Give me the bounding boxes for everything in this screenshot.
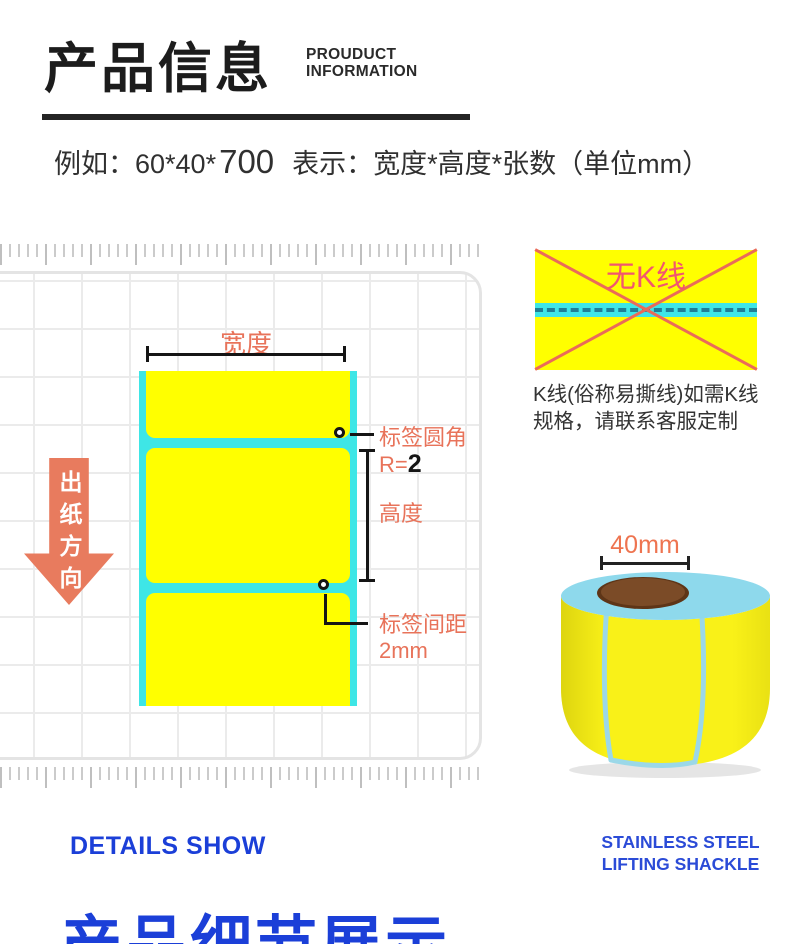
title-underline [42,114,470,120]
gap-callout-marker [318,579,329,590]
corner-radius-value-row: R=2 [379,450,422,479]
kline-note-line1: K线(俗称易撕线)如需K线 [533,381,759,408]
corner-callout-line [350,433,374,436]
feed-direction-label: 出纸方向 [52,470,86,598]
label-roll-image [543,566,780,798]
ruler-bottom-tall-ticks [0,767,482,788]
gap-callout-line-vertical [324,594,327,625]
width-dimension-tick-right [343,346,346,362]
example-count: 700 [219,143,274,181]
radius-value: 2 [408,450,422,478]
footer-right-text: STAINLESS STEEL LIFTING SHACKLE [598,831,763,875]
height-dimension-line [366,449,369,582]
example-prefix: 例如：60*40* [54,142,216,181]
height-dimension-tick-bottom [359,579,375,582]
example-suffix: 表示：宽度*高度*张数（单位mm） [277,142,709,181]
height-dimension-tick-top [359,449,375,452]
width-dimension-line [147,353,345,356]
core-width-annotation: 40mm [598,531,692,560]
details-section-title: 产品细节展示 [60,894,450,944]
ruler-top-tall-ticks [0,244,482,265]
gap-value: 2mm [379,638,428,664]
kline-note: K线(俗称易撕线)如需K线 规格，请联系客服定制 [533,381,759,435]
corner-callout-marker [334,427,345,438]
label-sticker-1 [146,371,350,438]
kline-note-line2: 规格，请联系客服定制 [533,408,759,435]
page-subtitle-line1: PROUDUCT [306,46,418,63]
gap-annotation: 标签间距 [379,607,467,639]
width-dimension-tick-left [146,346,149,362]
ruler-bottom [0,767,482,789]
radius-prefix: R= [379,452,408,477]
page-subtitle-line2: INFORMATION [306,63,418,80]
product-info-page: 产品信息 PROUDUCT INFORMATION 例如：60*40* 700 … [0,0,800,944]
no-kline-label: 无K线 [535,252,757,296]
footer-right-line2: LIFTING SHACKLE [598,853,763,875]
ruler-top [0,244,482,266]
gap-callout-line-horizontal [324,622,368,625]
no-kline-sample-box: 无K线 [535,250,757,370]
page-subtitle: PROUDUCT INFORMATION [306,46,418,80]
details-show-heading: DETAILS SHOW [70,832,266,861]
page-title: 产品信息 [44,24,272,103]
label-sticker-3 [146,593,350,706]
height-annotation: 高度 [379,496,423,528]
core-width-dimension-line [601,562,689,565]
size-example-text: 例如：60*40* 700 表示：宽度*高度*张数（单位mm） [54,142,709,181]
label-sticker-2 [146,448,350,583]
corner-radius-annotation: 标签圆角 [379,420,467,452]
footer-right-line1: STAINLESS STEEL [598,831,763,853]
